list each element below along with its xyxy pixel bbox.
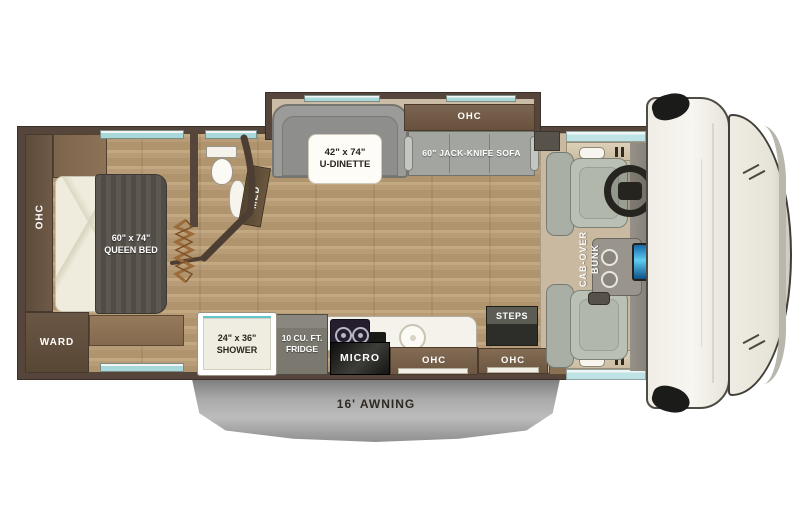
wardrobe: WARD [25,312,89,373]
steps-label: STEPS [496,311,528,345]
chrome-trim [763,126,786,384]
bedroom-overhead-cabinet: OHC [25,134,53,312]
accordion-door-icon [176,220,196,284]
bunk-label-line2: BUNK [590,244,600,274]
entry-steps: STEPS [486,306,538,346]
sofa-ohc-label: OHC [457,112,481,123]
dinette-window [304,95,380,102]
bunk-label-line1: CAB-OVER [578,231,588,287]
shower-name-label: SHOWER [217,345,258,355]
bedroom-ohc-label: OHC [34,187,46,247]
fridge-label-line1: 10 CU. FT. [282,334,323,344]
awning-label: 16' AWNING [188,398,564,412]
rv-floorplan-canvas: 16' AWNING OHC WARD 60" x 74" QUEEN BED … [0,0,800,526]
dinette-size-label: 42" x 74" [325,148,366,159]
kitchen-ohc-label: OHC [422,356,446,367]
shower: 24" x 36" SHOWER [197,312,277,376]
microwave: MICRO [330,342,390,375]
cab-over-bunk-label: CAB-OVER BUNK [571,221,607,297]
cabinet-corner [534,131,560,151]
kitchen-window-strip [398,368,468,374]
refrigerator: 10 CU. FT. FRIDGE [276,314,328,375]
bedroom-window-bottom [100,363,184,372]
bedroom-nightstand [53,134,107,178]
entry-window-strip [487,367,539,373]
shower-size-label: 24" x 36" [218,333,257,343]
sofa-label: 60" JACK-KNIFE SOFA [422,149,521,159]
jack-knife-sofa: 60" JACK-KNIFE SOFA [408,131,535,176]
microwave-label: MICRO [340,352,380,364]
sofa-window [446,95,516,102]
queen-bed-size-label: 60" x 74" [112,233,151,243]
driver-door-window [566,131,646,142]
u-dinette-label-card: 42" x 74" U-DINETTE [308,134,382,184]
entry-ohc-label: OHC [501,356,525,367]
shower-pan: 24" x 36" SHOWER [203,318,271,370]
queen-bed: 60" x 74" QUEEN BED [95,174,167,314]
queen-bed-name-label: QUEEN BED [104,245,158,255]
bathroom-curved-wall [190,130,280,270]
bedroom-window-top [100,130,184,139]
wardrobe-label: WARD [40,337,75,349]
sofa-overhead-cabinet: OHC [404,104,535,131]
dinette-name-label: U-DINETTE [320,160,371,171]
bedroom-dresser [89,315,184,346]
cab-hood [646,97,730,409]
front-fascia [728,114,792,396]
fridge-label-line2: FRIDGE [286,345,318,355]
